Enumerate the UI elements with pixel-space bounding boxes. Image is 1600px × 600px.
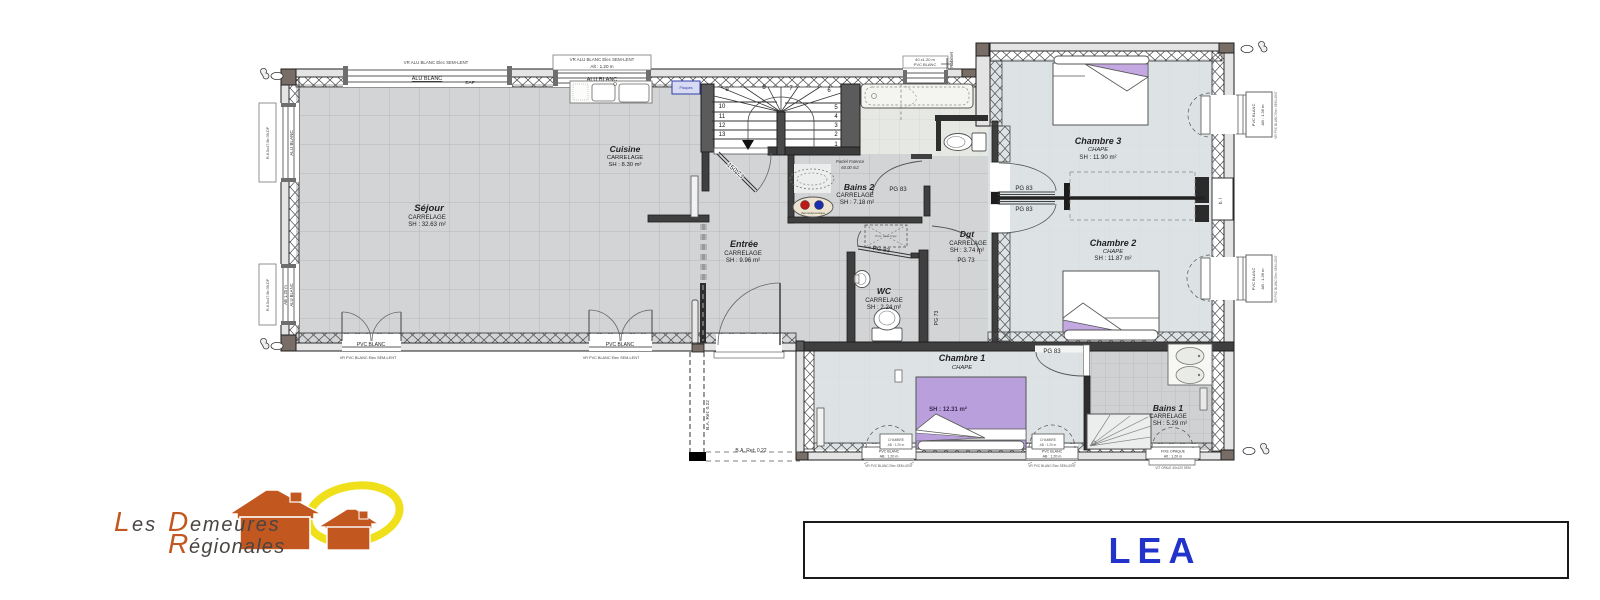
svg-text:Séjour: Séjour (414, 203, 445, 214)
svg-text:Cuisine: Cuisine (610, 144, 641, 154)
svg-text:LEA: LEA (1109, 530, 1202, 571)
svg-text:CARRELAGE: CARRELAGE (836, 192, 874, 199)
svg-text:CARRELAGE: CARRELAGE (408, 214, 446, 221)
svg-text:CARRELAGE: CARRELAGE (724, 250, 762, 257)
svg-text:CHAMBRE: CHAMBRE (888, 438, 904, 442)
svg-text:CARRELAGE: CARRELAGE (607, 155, 643, 161)
svg-text:PVC BLANC: PVC BLANC (879, 450, 900, 454)
svg-text:ALU BLANC: ALU BLANC (412, 76, 443, 82)
svg-text:L: L (114, 506, 130, 537)
svg-text:13: 13 (719, 132, 726, 138)
svg-text:PVC BLANC: PVC BLANC (914, 62, 937, 67)
svg-text:SH : 3.74 m²: SH : 3.74 m² (950, 247, 984, 254)
svg-text:Partiel Faïence: Partiel Faïence (836, 159, 865, 164)
svg-text:VR PVC BLANC Elec SEM-LENT: VR PVC BLANC Elec SEM-LENT (865, 464, 913, 468)
svg-text:PG 73: PG 73 (957, 257, 975, 264)
svg-text:R-6.5x47.5b 09-DF: R-6.5x47.5b 09-DF (266, 278, 270, 311)
svg-text:B.A. Ret: 0.22: B.A. Ret: 0.22 (705, 400, 711, 430)
svg-text:b. l: b. l (1218, 198, 1223, 204)
svg-text:SH : 11.87 m²: SH : 11.87 m² (1094, 255, 1131, 262)
svg-text:PG 73: PG 73 (934, 311, 940, 326)
svg-text:Alt : 1.20 m: Alt : 1.20 m (590, 64, 613, 69)
svg-text:SH : 12.31 m²: SH : 12.31 m² (929, 406, 967, 413)
svg-text:ALU BLANC: ALU BLANC (289, 130, 294, 156)
svg-text:ALU BLANC: ALU BLANC (289, 283, 294, 306)
svg-text:VIT OPALE 40x120 SEM: VIT OPALE 40x120 SEM (1155, 466, 1191, 470)
svg-text:R-6.5x47.5b 09-DF: R-6.5x47.5b 09-DF (266, 126, 270, 159)
svg-text:VR PVC BLANC Elec SEM-LENT: VR PVC BLANC Elec SEM-LENT (1274, 91, 1278, 139)
svg-text:SH : 11.90 m²: SH : 11.90 m² (1079, 154, 1116, 161)
svg-text:PVC BLANC: PVC BLANC (1251, 268, 1256, 291)
svg-text:SH : 8.30 m²: SH : 8.30 m² (608, 162, 641, 168)
svg-text:emeures: emeures (190, 514, 280, 536)
svg-text:VR PVC BLANC Elec SEM-LENT: VR PVC BLANC Elec SEM-LENT (340, 356, 397, 360)
svg-text:CHAPE: CHAPE (1088, 147, 1108, 153)
svg-text:AB : 1.20 m: AB : 1.20 m (880, 455, 899, 459)
svg-text:Bains 2: Bains 2 (844, 182, 875, 192)
svg-text:SH : 32.63 m²: SH : 32.63 m² (408, 221, 446, 228)
svg-text:Robinet: Robinet (949, 51, 954, 68)
svg-text:PG 83: PG 83 (1043, 348, 1061, 355)
svg-text:Plaques: Plaques (680, 86, 693, 90)
svg-text:SH : 2.24 m²: SH : 2.24 m² (867, 304, 901, 311)
svg-text:11: 11 (719, 114, 726, 120)
svg-text:SH : 9.96 m²: SH : 9.96 m² (726, 257, 760, 264)
svg-text:AB : 1.36 m: AB : 1.36 m (1260, 268, 1265, 290)
svg-text:Entrée: Entrée (730, 239, 758, 249)
svg-text:SH : 7.18 m²: SH : 7.18 m² (840, 199, 874, 206)
svg-text:PG 83: PG 83 (1015, 185, 1033, 192)
svg-text:AB : 1.36 m: AB : 1.36 m (1260, 104, 1265, 126)
svg-text:CARRELAGE: CARRELAGE (949, 240, 987, 247)
svg-text:égionales: égionales (189, 536, 285, 558)
svg-text:Chambre 1: Chambre 1 (939, 353, 986, 363)
svg-text:12: 12 (719, 123, 726, 129)
svg-text:AB : 1.20 m: AB : 1.20 m (1043, 455, 1062, 459)
svg-text:AB : 1.20 m: AB : 1.20 m (1040, 443, 1057, 447)
svg-text:PG 83: PG 83 (889, 186, 907, 193)
svg-text:CHAPE: CHAPE (952, 365, 972, 371)
svg-text:PVC BLANC: PVC BLANC (1042, 450, 1063, 454)
svg-text:CHAMBRE: CHAMBRE (1040, 438, 1056, 442)
svg-text:PVC BLANC: PVC BLANC (606, 342, 635, 348)
svg-text:VR PVC BLANC Elec SEM-LENT: VR PVC BLANC Elec SEM-LENT (1028, 464, 1076, 468)
svg-text:B.A. Ret: 0.22: B.A. Ret: 0.22 (735, 448, 766, 454)
svg-text:Chambre 2: Chambre 2 (1090, 238, 1137, 248)
svg-text:CARRELAGE: CARRELAGE (865, 297, 903, 304)
svg-text:FIXE OPAQUE: FIXE OPAQUE (1161, 450, 1186, 454)
svg-text:AB : 1.20 m: AB : 1.20 m (888, 443, 905, 447)
svg-text:PG 83: PG 83 (1015, 206, 1033, 213)
svg-text:10: 10 (719, 104, 726, 110)
svg-text:PVC BLANC: PVC BLANC (357, 342, 386, 348)
svg-text:VR PVC BLANC Elec SEM-LENT: VR PVC BLANC Elec SEM-LENT (583, 356, 640, 360)
svg-text:Chambre 3: Chambre 3 (1075, 136, 1122, 146)
svg-text:Dgt: Dgt (960, 229, 975, 239)
svg-text:Bains 1: Bains 1 (1153, 403, 1184, 413)
svg-text:PVC BLANC: PVC BLANC (1251, 104, 1256, 127)
svg-text:Prév. Lave-linge: Prév. Lave-linge (875, 234, 897, 238)
svg-text:SH : 5.29 m²: SH : 5.29 m² (1153, 420, 1187, 427)
svg-text:CARRELAGE: CARRELAGE (1149, 413, 1187, 420)
svg-text:VR ALU BLANC Elec SEM-LENT: VR ALU BLANC Elec SEM-LENT (404, 60, 469, 65)
svg-text:es: es (132, 514, 157, 536)
svg-text:VR ALU BLANC Elec SEM-LENT: VR ALU BLANC Elec SEM-LENT (570, 57, 635, 62)
svg-text:VR PVC BLANC Elec SEM-LENT: VR PVC BLANC Elec SEM-LENT (1274, 255, 1278, 303)
svg-text:thermodynamique: thermodynamique (801, 211, 825, 215)
svg-text:WC: WC (877, 286, 892, 296)
svg-text:Alt : 1.20 m: Alt : 1.20 m (1164, 455, 1182, 459)
svg-text:AB 1.20 m: AB 1.20 m (283, 285, 288, 305)
svg-text:R: R (168, 528, 188, 559)
svg-text:EAF: EAF (465, 80, 474, 86)
svg-text:60.00 m2: 60.00 m2 (841, 165, 859, 170)
